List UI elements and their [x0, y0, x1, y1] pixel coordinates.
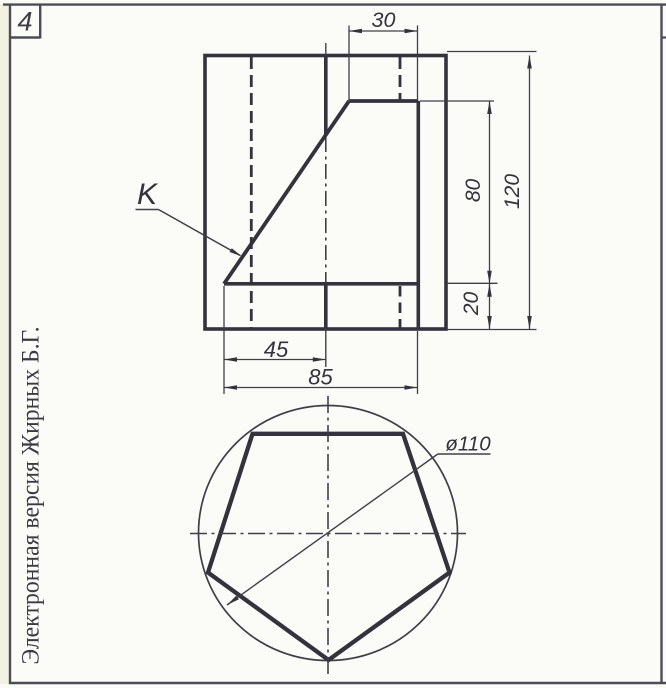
- svg-text:45: 45: [264, 337, 289, 362]
- svg-text:85: 85: [308, 365, 333, 390]
- svg-text:80: 80: [462, 179, 485, 203]
- svg-text:30: 30: [372, 8, 396, 32]
- svg-text:120: 120: [501, 174, 524, 209]
- svg-text:Электронная версия Жирных Б.Г.: Электронная версия Жирных Б.Г.: [18, 327, 45, 665]
- svg-text:K: K: [137, 178, 159, 211]
- svg-text:4: 4: [17, 7, 32, 37]
- svg-text:20: 20: [460, 292, 483, 317]
- svg-text:ø110: ø110: [445, 433, 491, 456]
